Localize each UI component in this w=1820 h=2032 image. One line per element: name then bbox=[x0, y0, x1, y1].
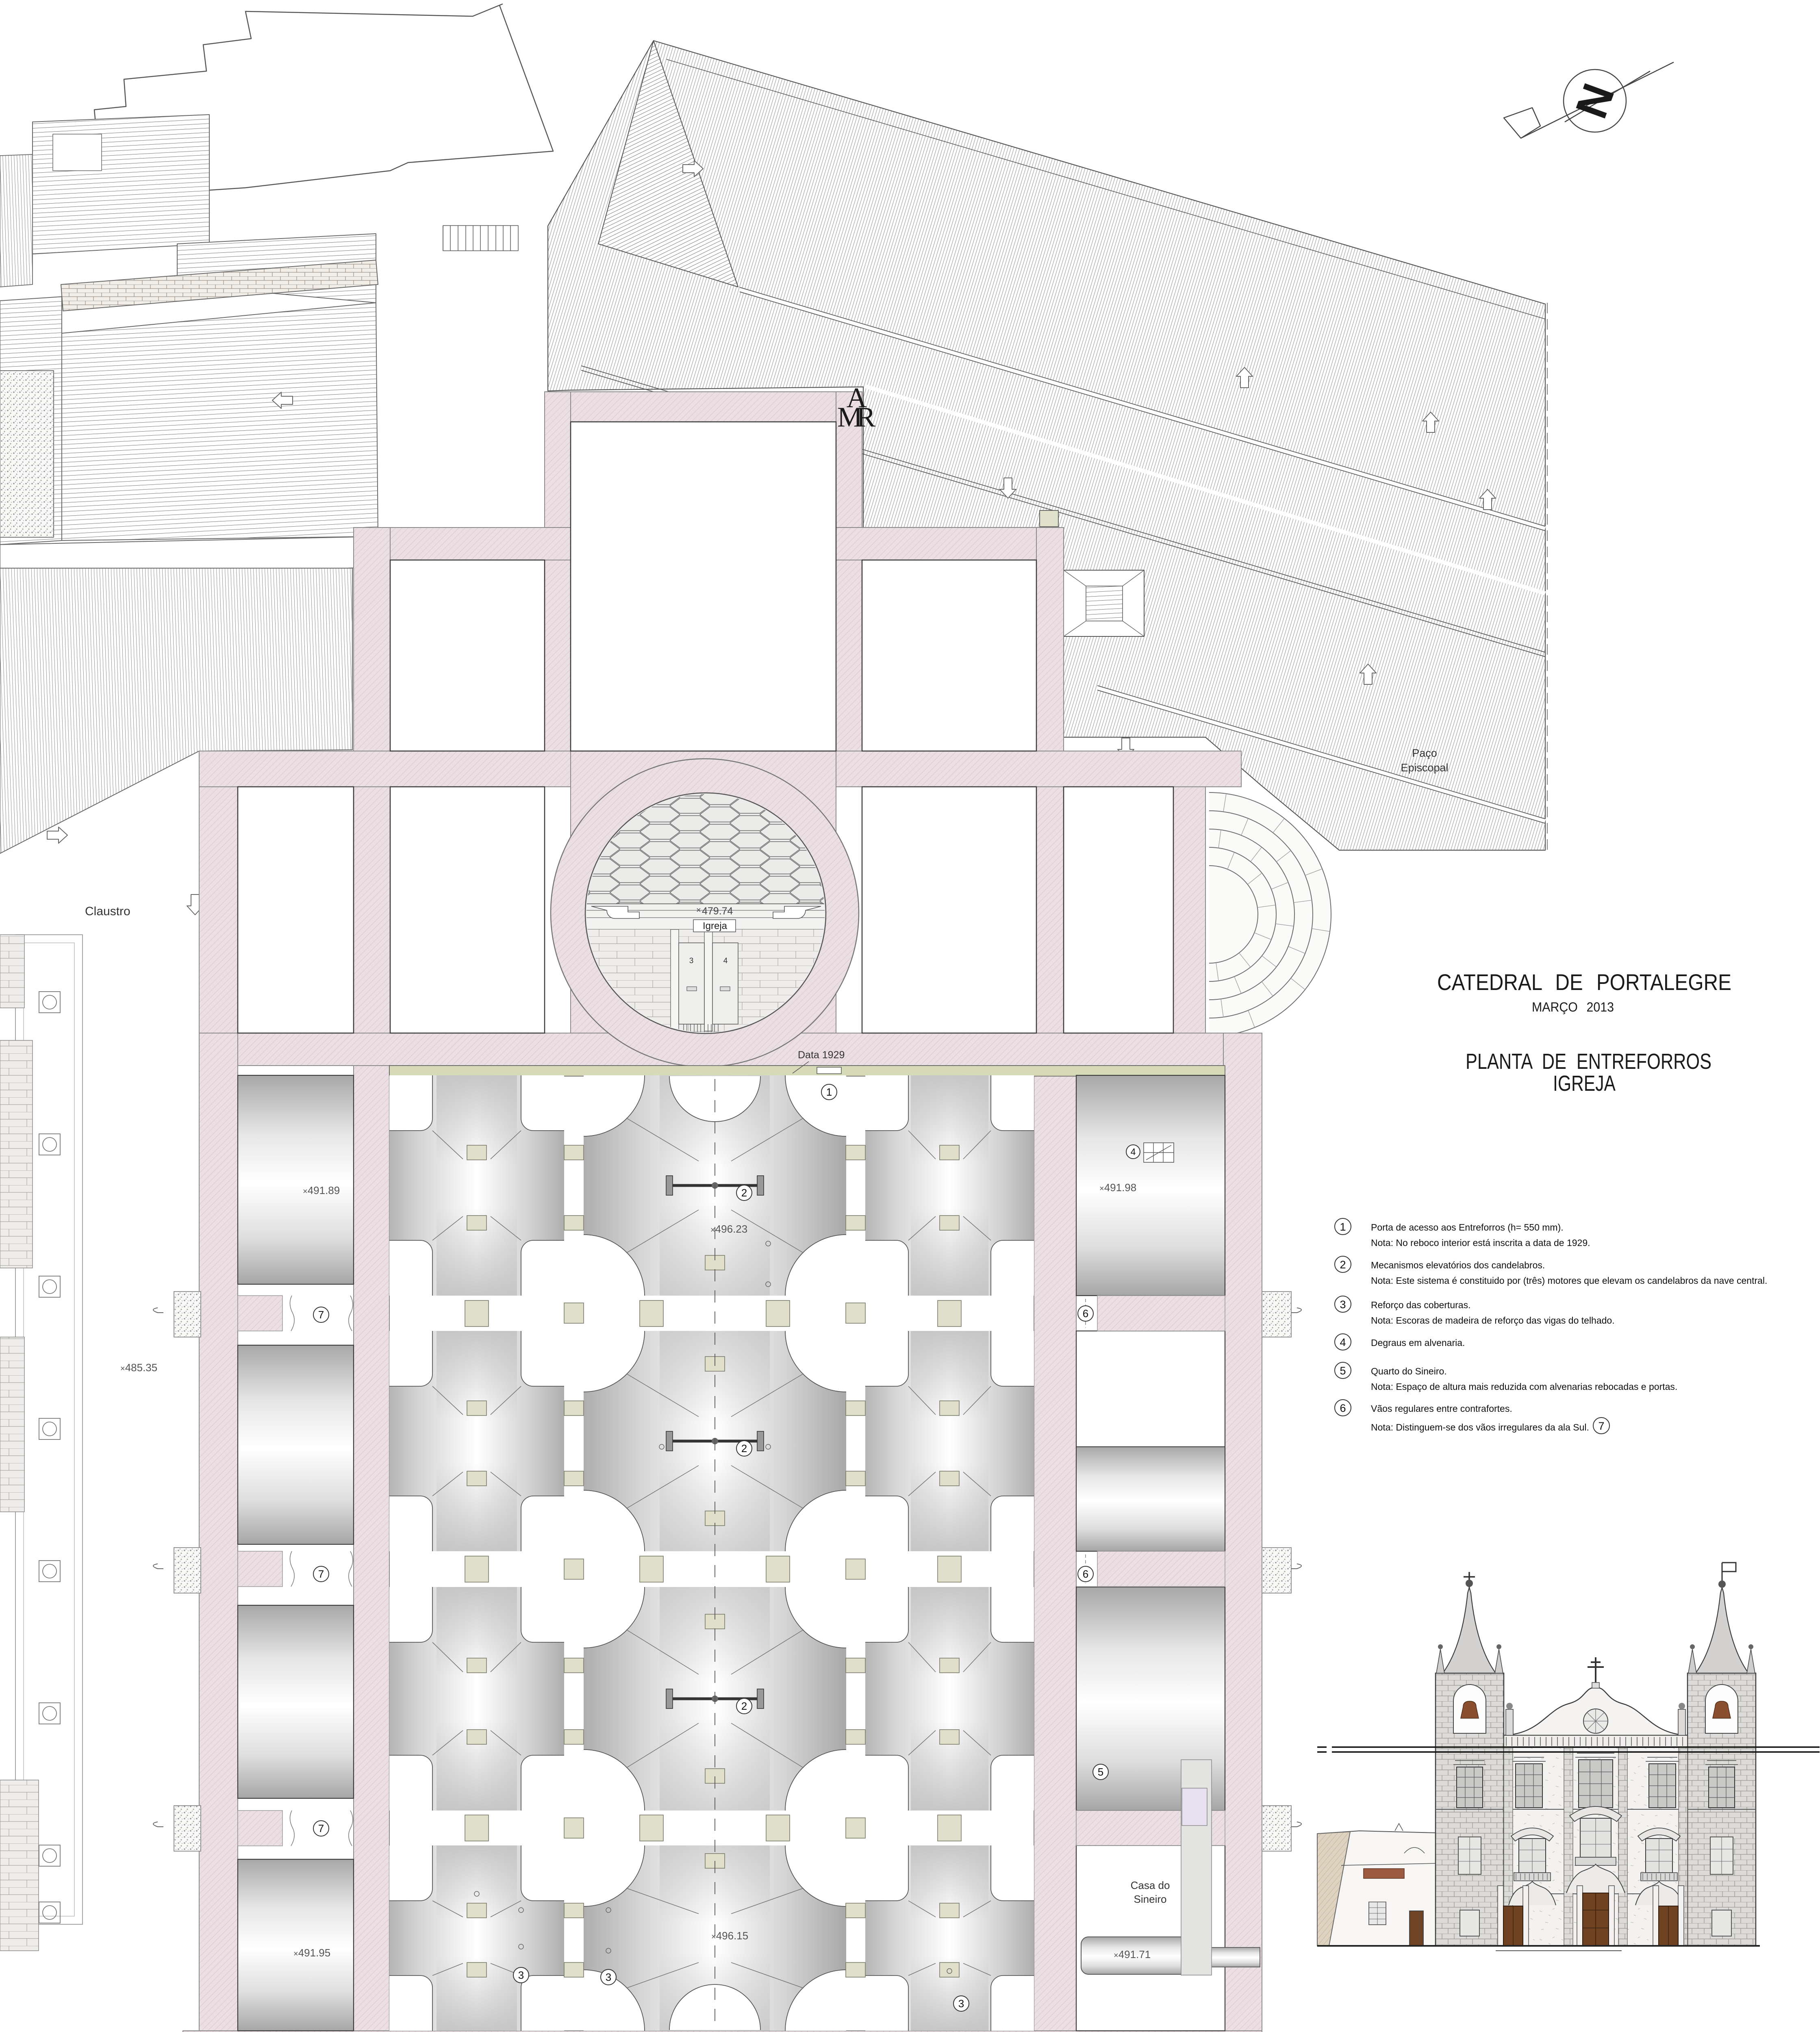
svg-text:2: 2 bbox=[1340, 1259, 1346, 1271]
svg-text:2: 2 bbox=[741, 1700, 747, 1712]
svg-text:Nota: Espaço de altura mais re: Nota: Espaço de altura mais reduzida com… bbox=[1371, 1381, 1677, 1392]
svg-text:Mecanismos elevatórios dos can: Mecanismos elevatórios dos candelabros. bbox=[1371, 1260, 1545, 1270]
svg-text:×496.15: ×496.15 bbox=[711, 1930, 748, 1942]
svg-text:×491.89: ×491.89 bbox=[303, 1184, 340, 1196]
svg-text:CATEDRAL DE PORTALEGRE: CATEDRAL DE PORTALEGRE bbox=[1437, 969, 1731, 995]
svg-text:Igreja: Igreja bbox=[703, 920, 728, 931]
svg-text:3: 3 bbox=[689, 957, 694, 965]
svg-text:Sineiro: Sineiro bbox=[1134, 1893, 1167, 1905]
svg-text:3: 3 bbox=[606, 1971, 611, 1983]
svg-text:Reforço das coberturas.: Reforço das coberturas. bbox=[1371, 1300, 1470, 1310]
svg-text:Paço: Paço bbox=[1412, 747, 1437, 759]
svg-text:Episcopal: Episcopal bbox=[1401, 762, 1448, 774]
svg-text:1: 1 bbox=[1340, 1221, 1346, 1233]
svg-text:4: 4 bbox=[1340, 1336, 1346, 1348]
svg-text:Claustro: Claustro bbox=[85, 905, 130, 918]
svg-text:Nota: Escoras de madeira de re: Nota: Escoras de madeira de reforço das … bbox=[1371, 1315, 1615, 1326]
svg-text:×: × bbox=[696, 906, 701, 915]
svg-text:×491.71: ×491.71 bbox=[1114, 1948, 1151, 1960]
svg-text:Degraus em alvenaria.: Degraus em alvenaria. bbox=[1371, 1337, 1465, 1348]
svg-text:Casa do: Casa do bbox=[1131, 1879, 1170, 1891]
svg-text:Nota: Distinguem-se dos vãos i: Nota: Distinguem-se dos vãos irregulares… bbox=[1371, 1422, 1589, 1433]
svg-text:6: 6 bbox=[1083, 1307, 1088, 1320]
svg-text:7: 7 bbox=[1598, 1420, 1604, 1432]
svg-text:1: 1 bbox=[826, 1086, 832, 1098]
svg-text:7: 7 bbox=[318, 1568, 324, 1580]
svg-text:×485.35: ×485.35 bbox=[120, 1361, 157, 1374]
svg-text:R: R bbox=[857, 402, 876, 433]
svg-text:IGREJA: IGREJA bbox=[1553, 1071, 1616, 1096]
svg-text:5: 5 bbox=[1098, 1766, 1103, 1778]
svg-text:×491.98: ×491.98 bbox=[1099, 1181, 1136, 1194]
svg-text:Quarto do Sineiro.: Quarto do Sineiro. bbox=[1371, 1366, 1447, 1376]
svg-text:Nota: Este sistema é constitui: Nota: Este sistema é constituido por (tr… bbox=[1371, 1275, 1767, 1286]
svg-text:6: 6 bbox=[1083, 1568, 1088, 1580]
svg-text:Nota: No reboco interior está: Nota: No reboco interior está inscrita a… bbox=[1371, 1237, 1590, 1248]
svg-text:×496.23: ×496.23 bbox=[710, 1223, 747, 1235]
svg-text:5: 5 bbox=[1340, 1365, 1346, 1377]
svg-text:Porta de acesso aos Entreforro: Porta de acesso aos Entreforros (h= 550 … bbox=[1371, 1222, 1564, 1233]
svg-text:2: 2 bbox=[741, 1442, 747, 1455]
svg-text:4: 4 bbox=[723, 957, 728, 965]
svg-text:3: 3 bbox=[958, 1997, 964, 2010]
svg-text:7: 7 bbox=[318, 1822, 324, 1834]
svg-text:MARÇO 2013: MARÇO 2013 bbox=[1532, 1000, 1614, 1014]
svg-text:PLANTA DE ENTREFORROS: PLANTA DE ENTREFORROS bbox=[1466, 1049, 1711, 1074]
svg-text:Vãos regulares entre contrafor: Vãos regulares entre contrafortes. bbox=[1371, 1403, 1512, 1414]
svg-text:3: 3 bbox=[1340, 1298, 1346, 1311]
svg-text:479.74: 479.74 bbox=[702, 905, 733, 917]
svg-text:7: 7 bbox=[318, 1309, 324, 1321]
svg-text:2: 2 bbox=[741, 1187, 747, 1199]
svg-text:×491.95: ×491.95 bbox=[293, 1947, 330, 1959]
svg-text:3: 3 bbox=[518, 1969, 524, 1981]
svg-text:6: 6 bbox=[1340, 1402, 1346, 1414]
svg-text:4: 4 bbox=[1131, 1146, 1136, 1157]
svg-text:Data 1929: Data 1929 bbox=[798, 1049, 845, 1061]
